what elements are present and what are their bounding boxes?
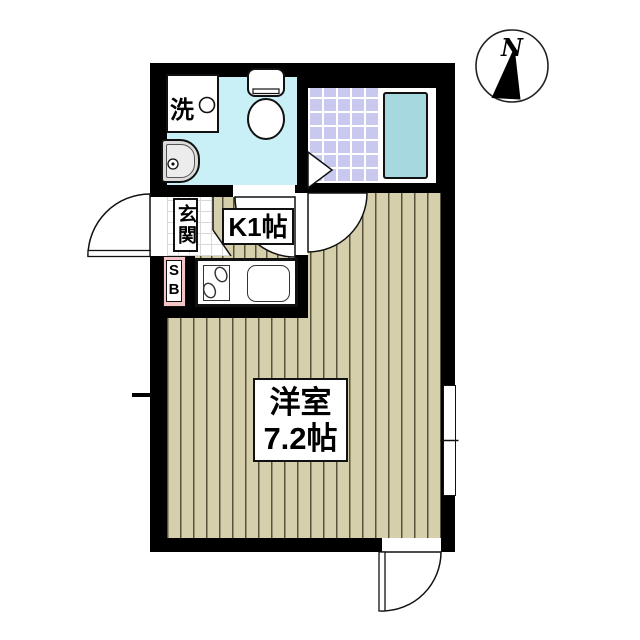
entrance-label: 玄関 [173, 198, 198, 252]
main-room-name: 洋室 [270, 387, 332, 418]
entrance-door-swing-icon [88, 194, 150, 256]
entrance-door-leaf-icon [88, 251, 150, 257]
shoebox-label: S B [166, 260, 182, 302]
balcony-door-leaf-icon [379, 552, 385, 611]
north-label: N [498, 33, 526, 62]
washbasin-bowl [166, 144, 195, 178]
bathtub [383, 92, 428, 179]
stove-top [203, 265, 230, 301]
bathroom-tile-floor [308, 88, 378, 183]
washroom-door-opening [233, 185, 295, 197]
balcony-door-swing-icon [382, 552, 441, 611]
main-room-door-opening [295, 193, 308, 255]
entrance-door-opening [150, 197, 167, 256]
shoebox-wall-segment [186, 256, 195, 307]
exterior-wall-stub [132, 393, 150, 397]
shoebox-letter-b: B [169, 281, 180, 300]
kitchen-size-label: K1帖 [222, 208, 294, 245]
floor-plan-canvas: 洗 玄関 K1帖 S B 洋室 7.2帖 N [0, 0, 640, 640]
kitchen-sink [247, 265, 290, 302]
main-room-size: 7.2帖 [263, 423, 337, 454]
main-room-label: 洋室 7.2帖 [253, 378, 348, 462]
washer-label: 洗 [170, 90, 194, 125]
shoebox-letter-s: S [169, 262, 179, 281]
balcony-door-opening [382, 538, 441, 552]
sliding-window [443, 385, 456, 496]
